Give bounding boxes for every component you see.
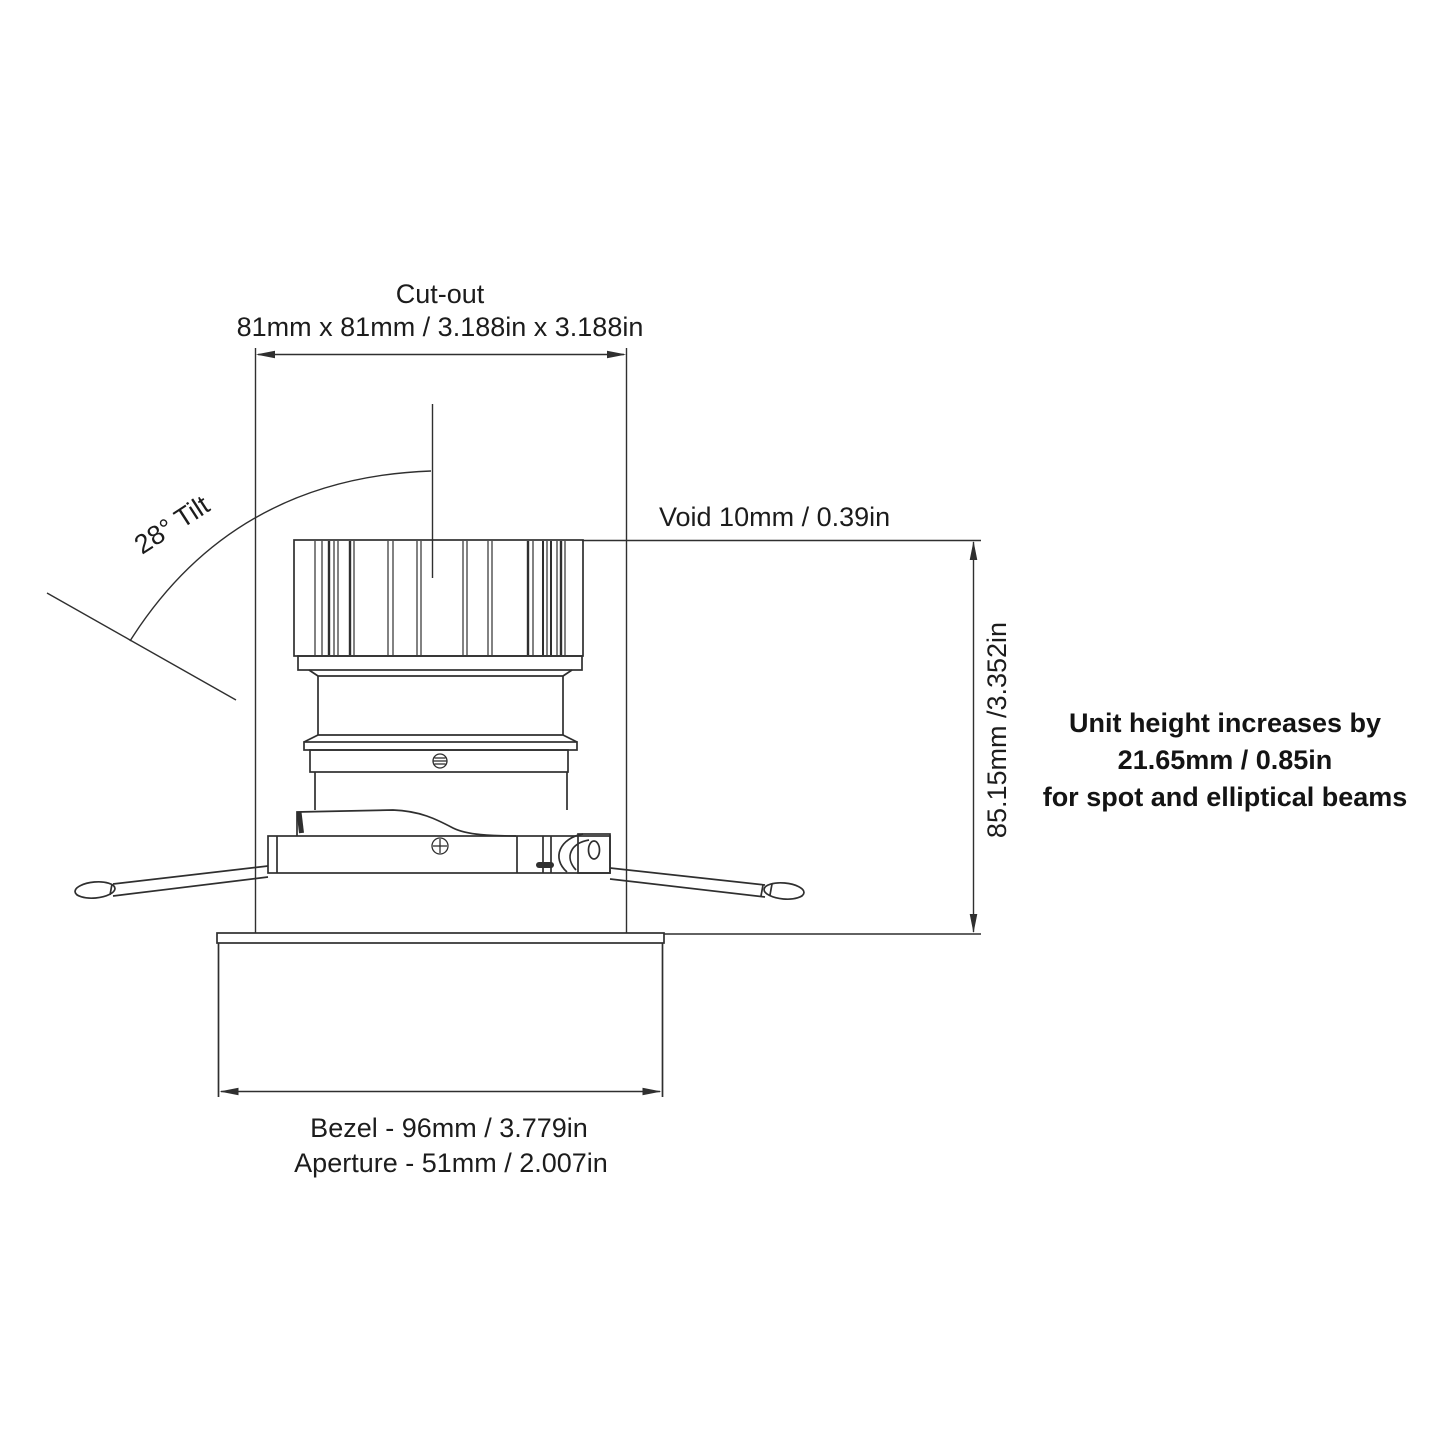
plate-screw bbox=[432, 838, 448, 854]
arrow-left-icon bbox=[220, 1088, 239, 1096]
dimension-arrows bbox=[220, 351, 978, 1096]
dimension-lines bbox=[47, 348, 981, 1092]
unit-height-note: Unit height increases by 21.65mm / 0.85i… bbox=[1043, 705, 1408, 816]
arrow-right-icon bbox=[643, 1088, 662, 1096]
arrow-up-icon bbox=[970, 541, 978, 560]
right-spring-arm bbox=[610, 868, 805, 901]
arrow-right-icon bbox=[607, 351, 626, 358]
note-line-1: Unit height increases by bbox=[1043, 705, 1408, 742]
downlight-dimension-diagram: Cut-out 81mm x 81mm / 3.188in x 3.188in … bbox=[0, 0, 1445, 1445]
cylinder-shoulder bbox=[304, 735, 577, 742]
heatsink bbox=[294, 540, 583, 656]
heatsink-fins bbox=[315, 541, 565, 655]
bezel-label: Bezel - 96mm / 3.779in bbox=[310, 1112, 588, 1144]
bracket-hole bbox=[589, 841, 600, 859]
fixture-body bbox=[74, 540, 804, 1097]
collar-band bbox=[298, 656, 582, 670]
arrow-left-icon bbox=[256, 351, 275, 358]
left-spring-arm bbox=[74, 866, 268, 900]
tilt-line bbox=[47, 593, 236, 700]
flare-ring bbox=[304, 742, 577, 750]
tilt-head-hinge bbox=[299, 812, 302, 833]
spring-bracket bbox=[578, 834, 610, 873]
aperture-label: Aperture - 51mm / 2.007in bbox=[294, 1147, 608, 1179]
note-line-2: 21.65mm / 0.85in bbox=[1043, 742, 1408, 779]
height-label: 85.15mm /3.352in bbox=[981, 622, 1013, 838]
tilt-arc bbox=[130, 471, 431, 641]
void-label: Void 10mm / 0.39in bbox=[659, 501, 890, 533]
arrow-down-icon bbox=[970, 914, 978, 933]
collar-taper bbox=[309, 670, 572, 676]
cutout-title: Cut-out bbox=[396, 278, 485, 310]
cutout-value: 81mm x 81mm / 3.188in x 3.188in bbox=[237, 311, 644, 343]
bezel-flange bbox=[217, 933, 664, 943]
note-line-3: for spot and elliptical beams bbox=[1043, 779, 1408, 816]
tilt-head bbox=[297, 810, 516, 836]
spring-coil-inner bbox=[570, 840, 589, 870]
ring-screw bbox=[433, 754, 447, 768]
